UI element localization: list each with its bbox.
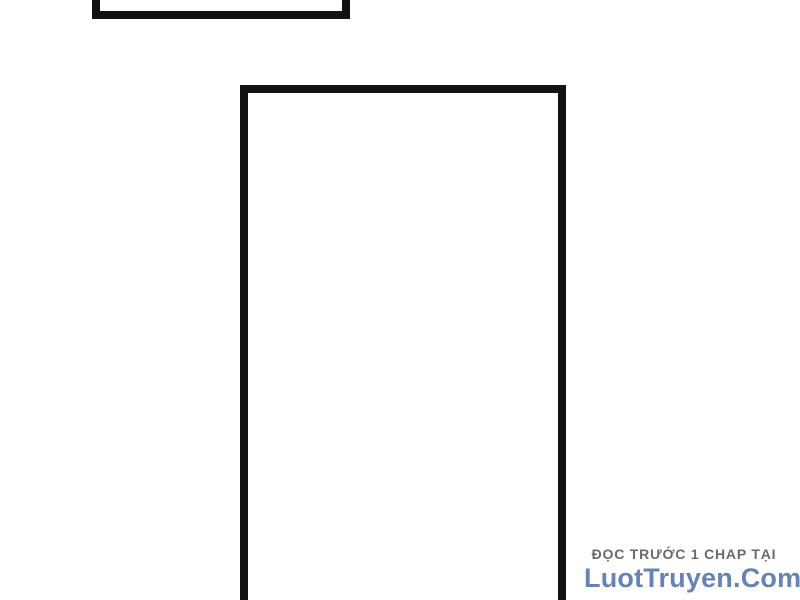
site-watermark: ĐỌC TRƯỚC 1 CHAP TẠI LuotTruyen.Com [584,547,784,592]
watermark-site-name: LuotTruyen.Com [584,565,784,592]
comic-panel-main [240,85,566,600]
comic-panel-partial-top [92,0,350,19]
watermark-tagline: ĐỌC TRƯỚC 1 CHAP TẠI [584,547,784,561]
comic-page: ĐỌC TRƯỚC 1 CHAP TẠI LuotTruyen.Com [0,0,800,600]
